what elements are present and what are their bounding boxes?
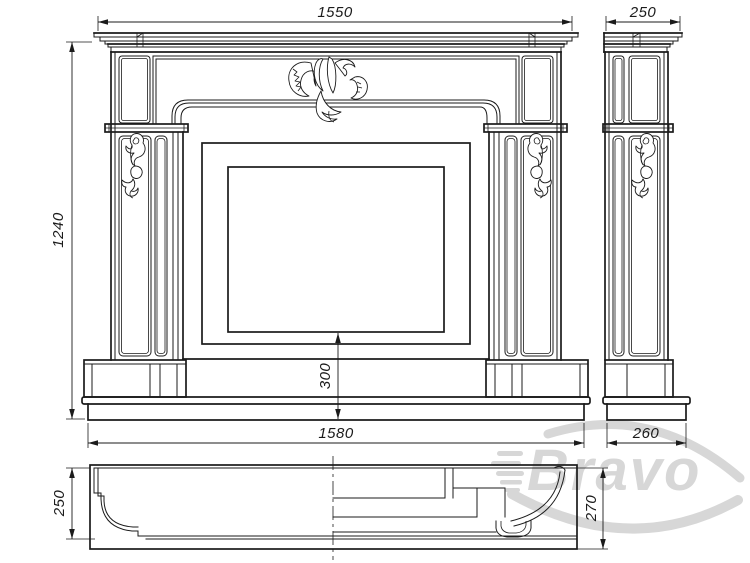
dim-text-1550: 1550 [317,4,353,21]
dim-text-300: 300 [317,363,334,390]
dim-text-1580: 1580 [318,425,354,442]
side-base [603,360,690,420]
dim-text-250-side: 250 [629,4,657,21]
side-cornice [604,33,682,52]
right-pilaster-ornament [528,134,551,198]
mantel-shelf [94,33,578,52]
dim-text-1240: 1240 [50,212,67,248]
dimension-shelf-depth: 250 [606,4,680,31]
dim-text-260: 260 [632,425,660,442]
firebox [183,143,489,359]
dimension-hearth-height: 300 [317,333,341,419]
dim-text-270: 270 [583,495,600,523]
left-pilaster [105,52,188,360]
plan-left-corner [94,468,138,536]
dimension-body-depth: 250 [51,468,95,539]
front-view: 1550 1240 300 1580 [50,4,590,448]
dimension-overall-height: 1240 [50,42,92,419]
side-column [603,52,673,360]
dimension-shelf-width: 1550 [98,4,572,31]
fireplace-technical-drawing: Bravo [0,0,750,563]
dim-text-250-plan: 250 [51,490,68,518]
watermark: Bravo [491,425,740,529]
right-pilaster [484,52,567,360]
side-column-ornament [632,134,655,198]
drawing-canvas: Bravo [0,0,750,563]
dimension-base-width: 1580 [88,423,584,448]
left-pilaster-ornament [122,134,145,198]
watermark-speed-lines [491,451,524,492]
center-cartouche-ornament [289,57,368,122]
side-view: 250 260 [603,4,690,448]
plan-view: 250 270 [51,456,608,560]
